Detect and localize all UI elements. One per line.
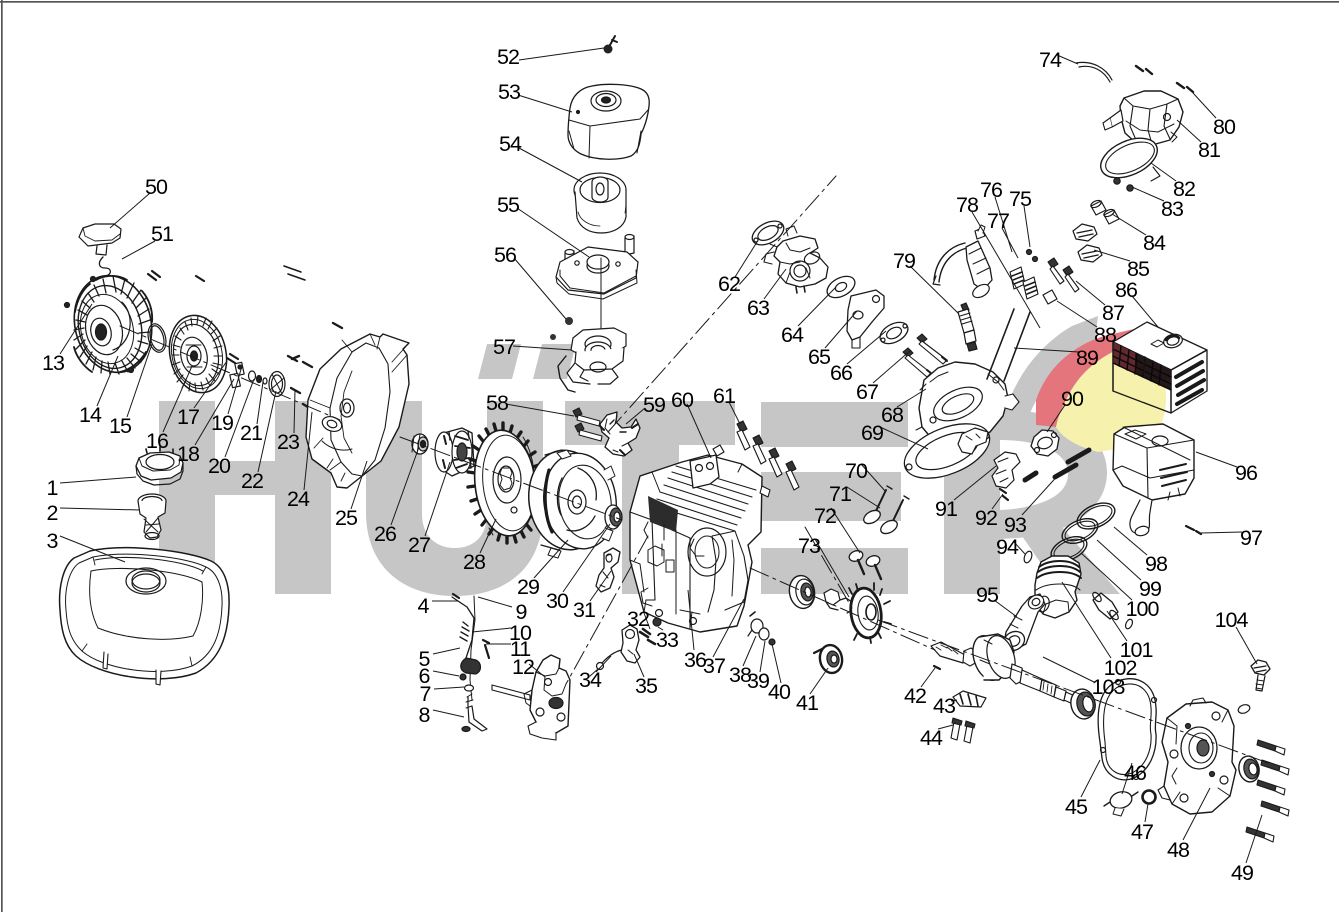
svg-text:39: 39 [747, 669, 769, 693]
svg-text:13: 13 [42, 351, 65, 375]
svg-text:66: 66 [830, 361, 853, 385]
svg-text:90: 90 [1061, 387, 1084, 411]
svg-text:96: 96 [1235, 461, 1258, 485]
svg-text:43: 43 [933, 694, 956, 718]
svg-text:65: 65 [808, 345, 831, 369]
svg-text:54: 54 [499, 132, 522, 156]
svg-text:62: 62 [718, 272, 740, 296]
svg-text:88: 88 [1094, 323, 1117, 347]
svg-text:45: 45 [1065, 795, 1088, 819]
svg-text:72: 72 [814, 504, 836, 528]
svg-text:3: 3 [47, 529, 59, 553]
svg-text:41: 41 [796, 691, 818, 715]
svg-text:91: 91 [935, 497, 957, 521]
svg-text:60: 60 [671, 388, 694, 412]
svg-text:50: 50 [145, 175, 168, 199]
svg-text:76: 76 [980, 178, 1003, 202]
svg-text:30: 30 [546, 589, 569, 613]
svg-text:104: 104 [1215, 608, 1249, 632]
svg-text:40: 40 [768, 680, 791, 704]
svg-text:63: 63 [747, 296, 770, 320]
svg-text:89: 89 [1076, 346, 1098, 370]
svg-text:57: 57 [493, 335, 515, 359]
svg-text:15: 15 [109, 414, 132, 438]
svg-text:16: 16 [146, 429, 169, 453]
svg-text:64: 64 [781, 323, 804, 347]
svg-text:1: 1 [47, 476, 58, 500]
svg-text:84: 84 [1143, 231, 1166, 255]
svg-text:37: 37 [703, 654, 725, 678]
svg-text:42: 42 [904, 684, 926, 708]
svg-text:8: 8 [419, 703, 431, 727]
svg-text:79: 79 [893, 249, 915, 273]
svg-text:77: 77 [987, 209, 1009, 233]
svg-text:103: 103 [1092, 675, 1126, 699]
svg-text:48: 48 [1167, 838, 1190, 862]
svg-text:26: 26 [374, 522, 397, 546]
svg-text:32: 32 [627, 607, 649, 631]
svg-text:34: 34 [579, 668, 602, 692]
svg-text:23: 23 [277, 430, 300, 454]
svg-text:86: 86 [1115, 278, 1138, 302]
svg-text:52: 52 [497, 45, 519, 69]
svg-text:51: 51 [151, 222, 173, 246]
svg-text:74: 74 [1039, 48, 1062, 72]
svg-text:29: 29 [517, 575, 539, 599]
svg-text:94: 94 [996, 535, 1019, 559]
svg-text:73: 73 [798, 534, 821, 558]
svg-text:70: 70 [845, 459, 868, 483]
svg-text:21: 21 [240, 421, 262, 445]
svg-text:49: 49 [1231, 861, 1253, 885]
svg-text:35: 35 [635, 674, 658, 698]
svg-text:93: 93 [1004, 513, 1027, 537]
svg-text:27: 27 [408, 533, 430, 557]
svg-text:44: 44 [920, 726, 943, 750]
svg-text:2: 2 [47, 501, 58, 525]
svg-text:31: 31 [573, 598, 595, 622]
svg-text:56: 56 [494, 243, 517, 267]
svg-text:59: 59 [643, 393, 665, 417]
svg-text:95: 95 [976, 583, 999, 607]
svg-text:83: 83 [1161, 197, 1184, 221]
svg-text:22: 22 [241, 469, 263, 493]
svg-text:61: 61 [713, 384, 735, 408]
svg-text:28: 28 [463, 550, 486, 574]
svg-text:46: 46 [1124, 761, 1147, 785]
svg-text:69: 69 [861, 421, 883, 445]
svg-text:24: 24 [287, 487, 310, 511]
svg-text:97: 97 [1240, 526, 1262, 550]
svg-text:14: 14 [79, 403, 102, 427]
svg-text:33: 33 [656, 628, 679, 652]
svg-text:75: 75 [1009, 187, 1032, 211]
svg-text:68: 68 [881, 403, 904, 427]
svg-text:53: 53 [498, 80, 521, 104]
svg-text:67: 67 [856, 380, 878, 404]
svg-text:17: 17 [177, 405, 199, 429]
svg-text:20: 20 [208, 454, 231, 478]
svg-text:87: 87 [1102, 301, 1124, 325]
svg-text:71: 71 [829, 482, 851, 506]
svg-text:98: 98 [1145, 552, 1168, 576]
svg-text:18: 18 [177, 442, 200, 466]
svg-text:55: 55 [497, 193, 520, 217]
svg-text:19: 19 [211, 411, 233, 435]
svg-text:47: 47 [1131, 820, 1153, 844]
svg-text:92: 92 [975, 506, 997, 530]
svg-text:4: 4 [418, 594, 430, 618]
svg-text:81: 81 [1198, 138, 1220, 162]
svg-text:80: 80 [1213, 115, 1236, 139]
svg-text:78: 78 [956, 193, 979, 217]
svg-text:58: 58 [486, 391, 509, 415]
svg-text:25: 25 [335, 506, 358, 530]
svg-text:100: 100 [1126, 597, 1160, 621]
svg-text:12: 12 [512, 655, 534, 679]
